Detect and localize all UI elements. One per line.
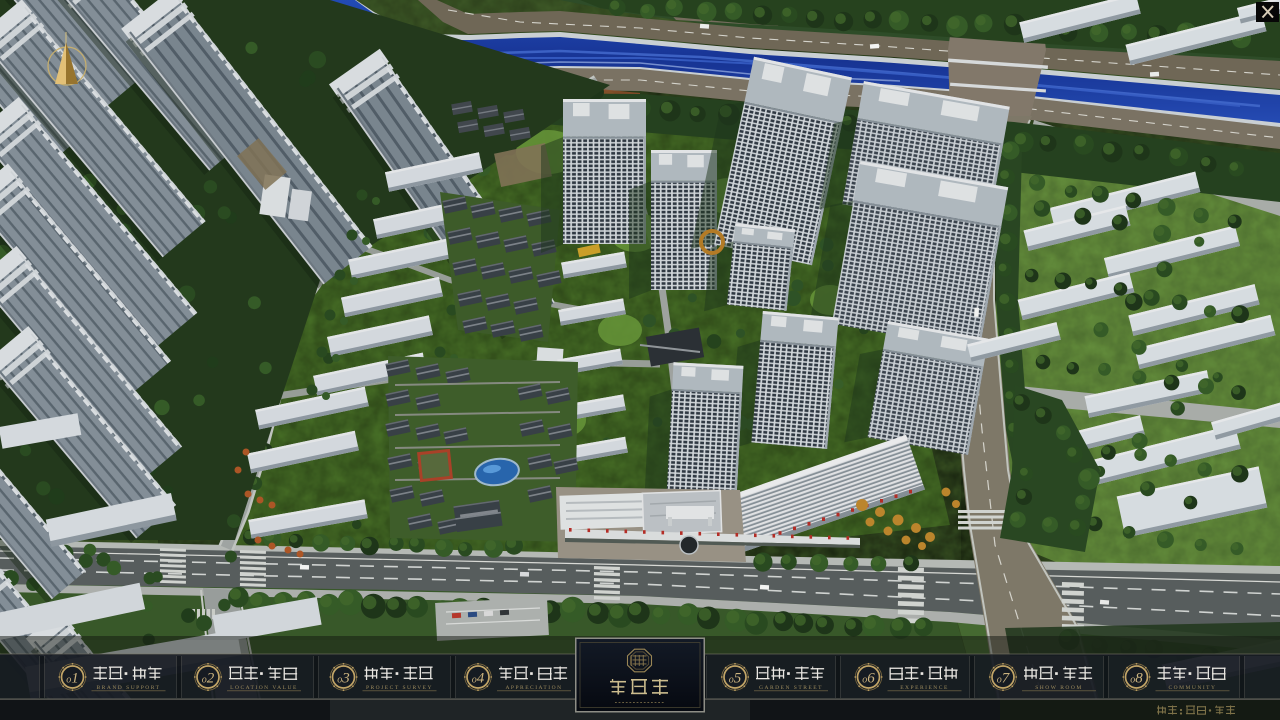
svg-text:LOCATION VALUE: LOCATION VALUE — [230, 685, 298, 691]
svg-text:COMMUNITY: COMMUNITY — [1168, 685, 1216, 691]
svg-text:APPRECIATION: APPRECIATION — [505, 685, 562, 691]
svg-text:PROJECT SURVEY: PROJECT SURVEY — [366, 685, 433, 691]
svg-text:GARDEN STREET: GARDEN STREET — [759, 685, 823, 691]
svg-text:EXPERIENCE: EXPERIENCE — [900, 685, 949, 691]
svg-text:SHOW ROOM: SHOW ROOM — [1035, 685, 1082, 691]
svg-text:BRAND SUPPORT: BRAND SUPPORT — [97, 685, 161, 691]
